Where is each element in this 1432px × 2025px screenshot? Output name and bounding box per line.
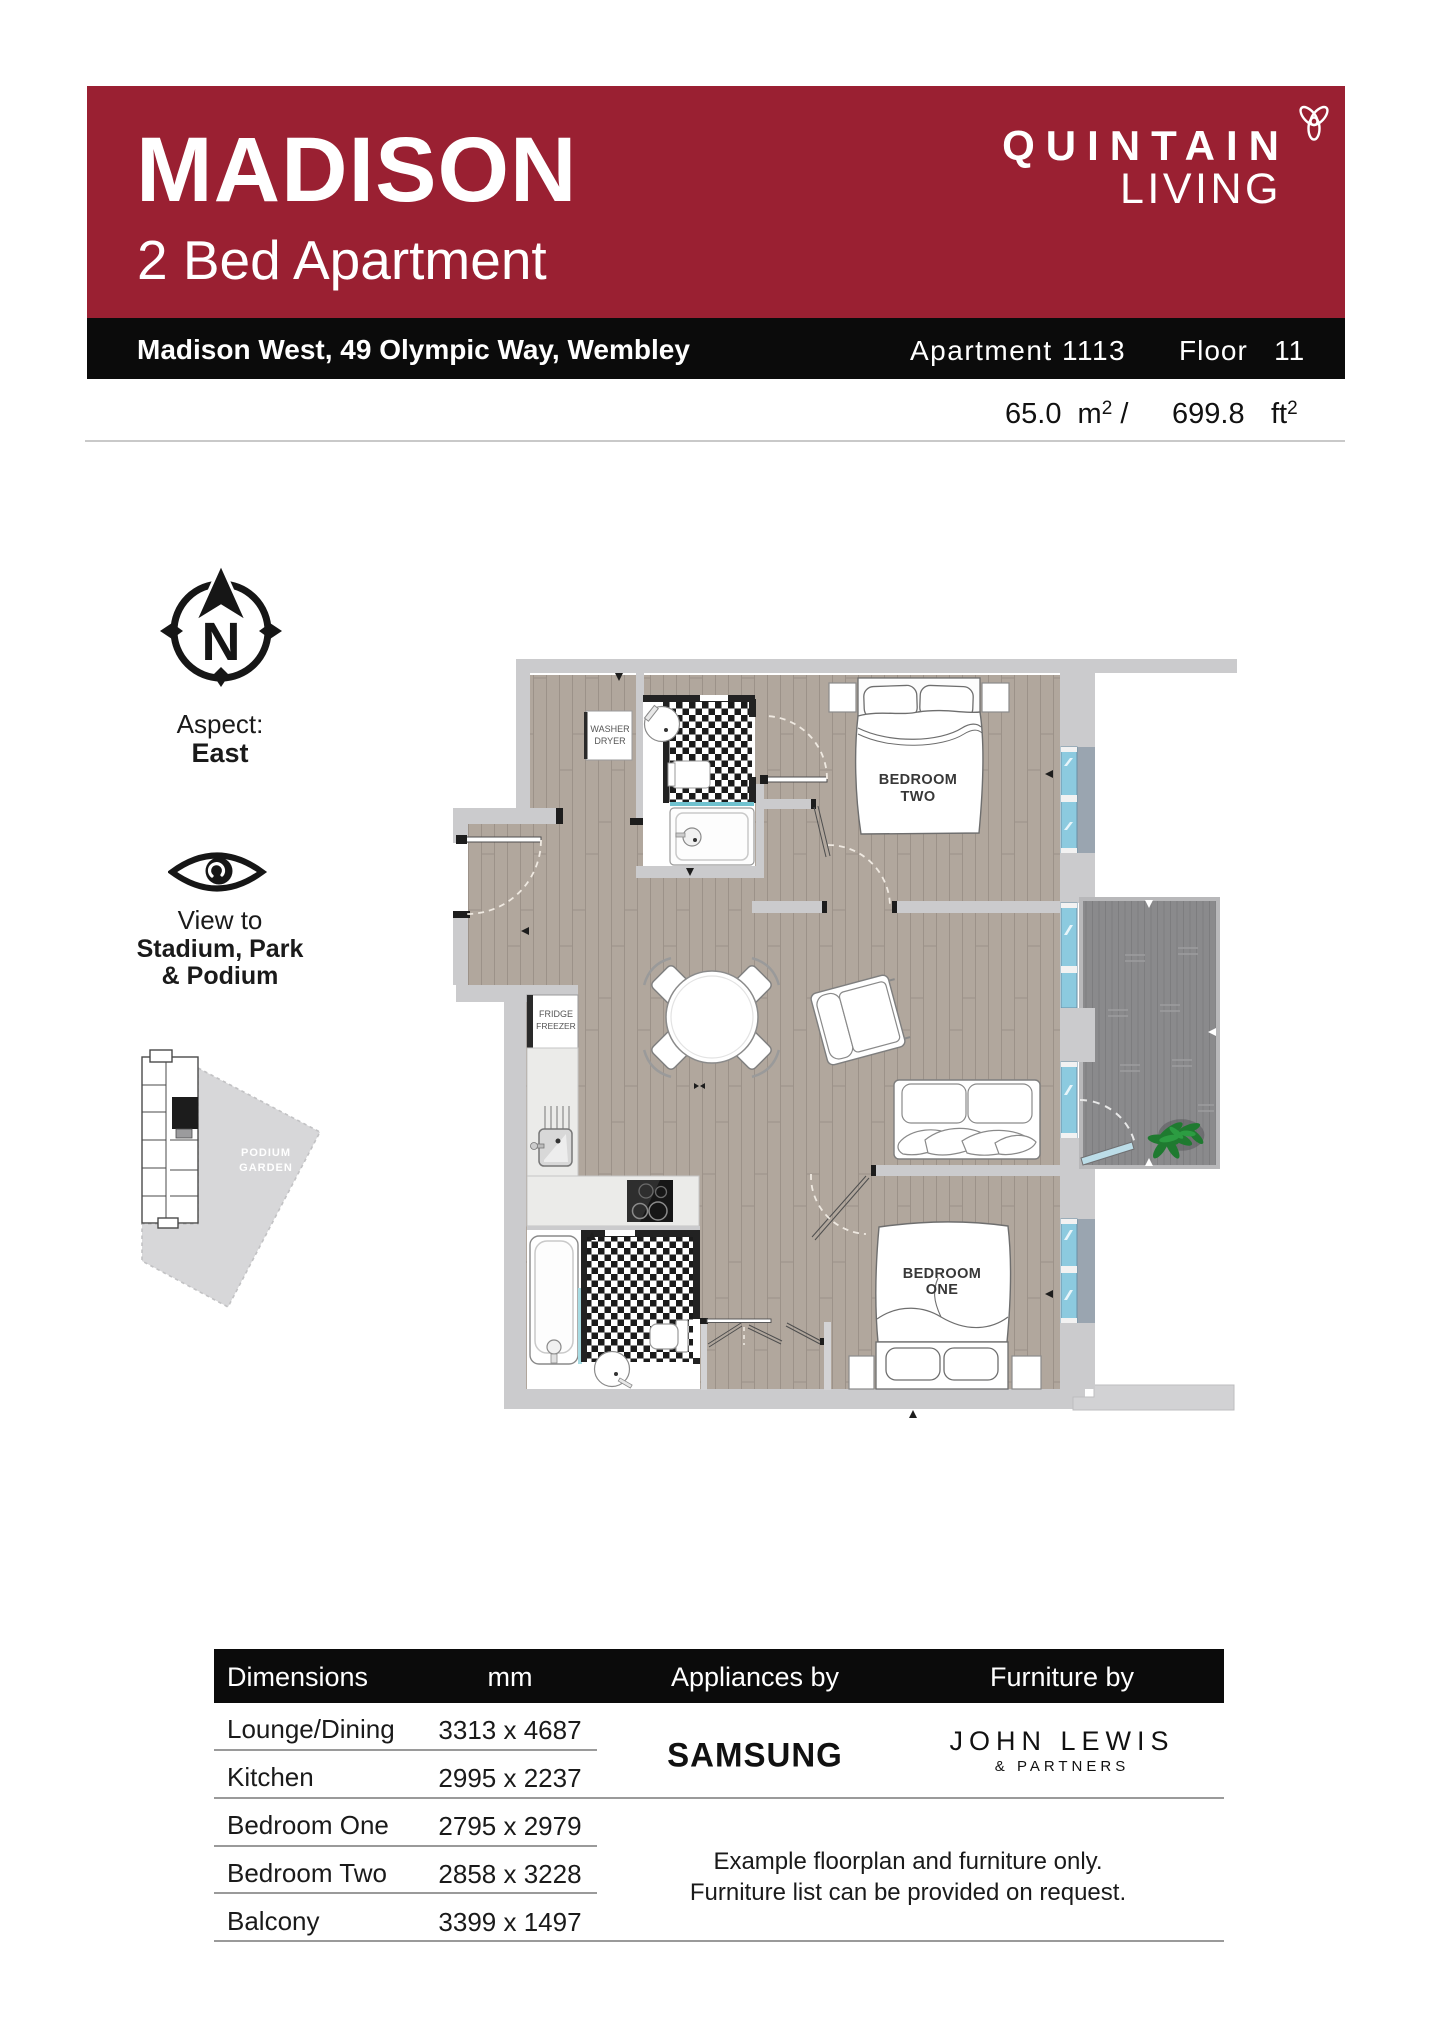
- svg-text:N: N: [202, 612, 241, 672]
- svg-text:BEDROOM: BEDROOM: [903, 1266, 982, 1282]
- svg-text:BEDROOM: BEDROOM: [879, 772, 958, 788]
- svg-text:ONE: ONE: [926, 1282, 959, 1298]
- svg-text:FRIDGE: FRIDGE: [539, 1009, 573, 1019]
- svg-text:PODIUM: PODIUM: [241, 1147, 291, 1159]
- svg-text:WASHER: WASHER: [590, 724, 630, 734]
- svg-text:FREEZER: FREEZER: [536, 1021, 576, 1031]
- svg-text:GARDEN: GARDEN: [239, 1162, 293, 1174]
- svg-text:DRYER: DRYER: [594, 736, 626, 746]
- svg-text:TWO: TWO: [900, 789, 935, 805]
